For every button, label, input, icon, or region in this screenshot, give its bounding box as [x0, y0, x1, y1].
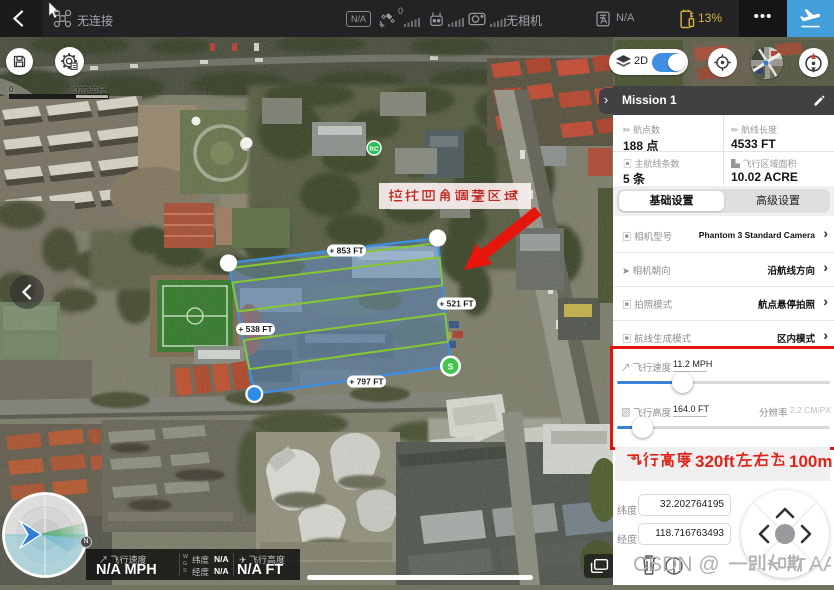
svg-text:320ft: 320ft: [695, 452, 735, 471]
svg-text:CSDN @: CSDN @: [633, 553, 720, 576]
svg-text:+ 853 FT: + 853 FT: [329, 246, 364, 256]
svg-text:100m: 100m: [789, 452, 832, 471]
svg-text:AA: AA: [809, 553, 831, 576]
svg-text:S: S: [448, 362, 454, 372]
svg-text:+ 521 FT: + 521 FT: [439, 299, 474, 309]
svg-text:+ 538 FT: + 538 FT: [238, 324, 273, 334]
svg-text:RC: RC: [369, 146, 379, 153]
svg-text:+ 797 FT: + 797 FT: [349, 377, 384, 387]
